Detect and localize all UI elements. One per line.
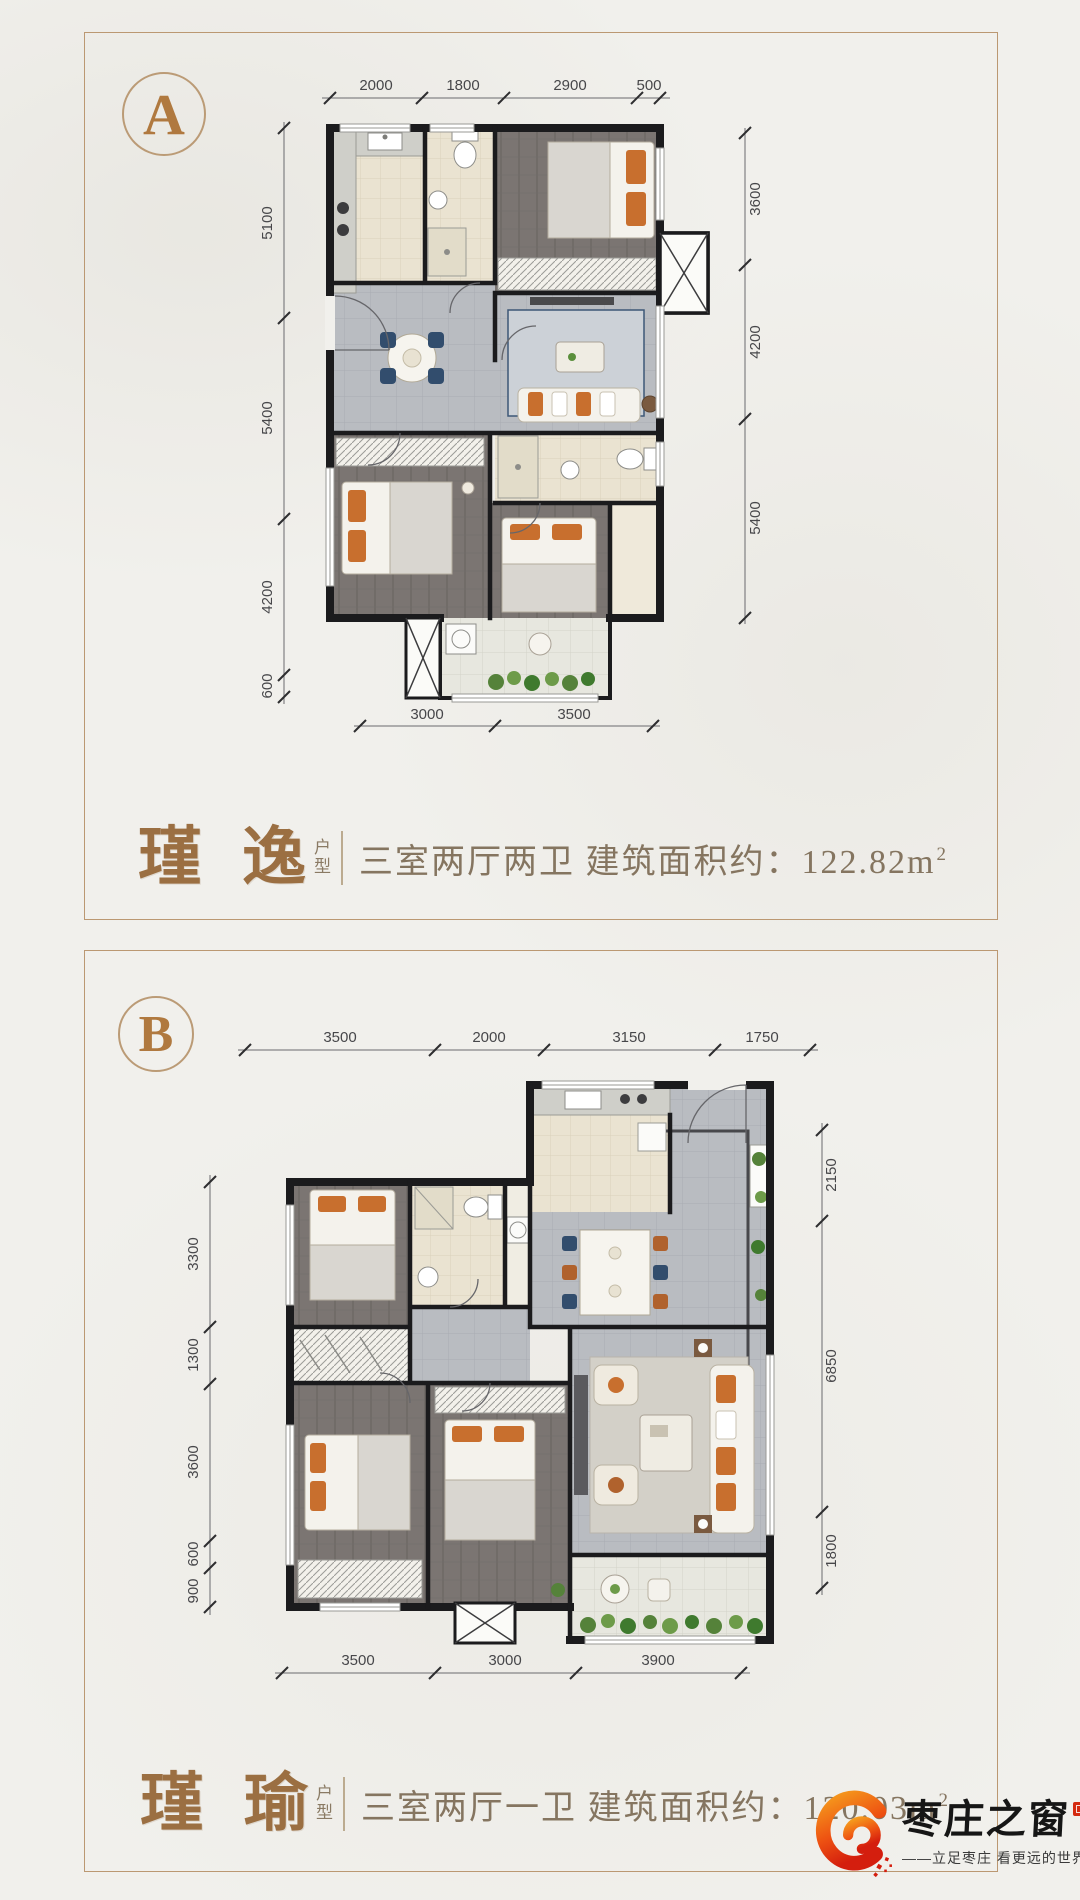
svg-text:2000: 2000 xyxy=(359,77,392,94)
hallway xyxy=(670,1212,770,1327)
logo-text-block: 枣庄之窗 ——立足枣庄 看更远的世界—— xyxy=(902,1790,1080,1868)
caption-divider xyxy=(341,831,343,885)
brand-seal-icon xyxy=(1073,1802,1080,1816)
plan-a-drawing-area: 2000 1800 2900 500 5100 5400 4200 600 xyxy=(240,58,800,758)
svg-text:2900: 2900 xyxy=(553,77,586,94)
svg-text:3600: 3600 xyxy=(747,182,764,215)
plan-a-dim-left: 5100 5400 4200 600 xyxy=(259,122,290,704)
logo-swirl-icon xyxy=(812,1790,898,1882)
caption-divider xyxy=(343,1777,345,1831)
plan-b-dim-right: 2150 6850 1800 xyxy=(816,1123,840,1595)
svg-text:3300: 3300 xyxy=(185,1237,202,1270)
svg-text:1750: 1750 xyxy=(745,1029,778,1046)
svg-text:3600: 3600 xyxy=(185,1445,202,1478)
plan-a-badge: A xyxy=(122,72,206,156)
plan-a-dim-top: 2000 1800 2900 500 xyxy=(322,77,670,104)
brand-name: 枣庄之窗 xyxy=(901,1800,1071,1840)
plan-b-dim-left: 3300 1300 3600 600 900 xyxy=(185,1175,216,1615)
svg-text:900: 900 xyxy=(185,1578,202,1603)
plan-b-unit-type-label: 户 型 xyxy=(316,1785,333,1822)
plan-a-caption: 瑾 逸 户 型 三室两厅两卫 建筑面积约：122.82m2 xyxy=(138,826,948,890)
plan-a-name: 瑾 逸 xyxy=(138,826,318,890)
wardrobe xyxy=(290,1327,410,1383)
svg-text:1300: 1300 xyxy=(185,1338,202,1371)
svg-text:1800: 1800 xyxy=(446,77,479,94)
svg-text:2150: 2150 xyxy=(823,1158,840,1191)
plan-a-badge-letter: A xyxy=(143,81,185,148)
plan-a-description: 三室两厅两卫 建筑面积约：122.82m2 xyxy=(359,834,948,883)
plan-b-dim-top: 3500 2000 3150 1750 xyxy=(238,1029,818,1056)
area-exponent: 2 xyxy=(936,844,948,865)
svg-text:600: 600 xyxy=(185,1541,202,1566)
plan-a-dim-bottom: 3000 3500 xyxy=(354,706,660,732)
plan-b-name: 瑾 瑜 xyxy=(140,1772,320,1836)
svg-text:2000: 2000 xyxy=(472,1029,505,1046)
plan-a-unit-type-label: 户 型 xyxy=(314,839,331,876)
floor-plan-a: 2000 1800 2900 500 5100 5400 4200 600 xyxy=(240,58,800,758)
svg-text:600: 600 xyxy=(259,673,276,698)
corridor xyxy=(410,1307,530,1383)
flyer-page: A xyxy=(0,0,1080,1900)
floor-plan-b: 3500 2000 3150 1750 3300 1300 3600 600 9… xyxy=(110,995,870,1705)
svg-text:3900: 3900 xyxy=(641,1652,674,1669)
svg-text:3150: 3150 xyxy=(612,1029,645,1046)
svg-text:4200: 4200 xyxy=(259,580,276,613)
utility xyxy=(505,1182,530,1307)
plan-a-dim-right: 3600 4200 5400 xyxy=(739,127,764,624)
svg-text:5400: 5400 xyxy=(747,501,764,534)
plan-b-drawing-area: 3500 2000 3150 1750 3300 1300 3600 600 9… xyxy=(110,995,870,1705)
svg-text:5400: 5400 xyxy=(259,401,276,434)
svg-text:1800: 1800 xyxy=(823,1534,840,1567)
closet xyxy=(610,503,660,618)
window-box-icon xyxy=(455,1603,515,1643)
svg-text:3000: 3000 xyxy=(410,706,443,723)
svg-text:3500: 3500 xyxy=(557,706,590,723)
site-logo: 枣庄之窗 ——立足枣庄 看更远的世界—— xyxy=(812,1790,1080,1882)
svg-text:3500: 3500 xyxy=(341,1652,374,1669)
brand-tagline: ——立足枣庄 看更远的世界—— xyxy=(902,1848,1080,1868)
svg-text:500: 500 xyxy=(636,77,661,94)
svg-text:6850: 6850 xyxy=(823,1349,840,1382)
plan-b-dim-bottom: 3500 3000 3900 xyxy=(275,1652,750,1679)
svg-text:3500: 3500 xyxy=(323,1029,356,1046)
svg-text:4200: 4200 xyxy=(747,325,764,358)
svg-text:3000: 3000 xyxy=(488,1652,521,1669)
svg-text:5100: 5100 xyxy=(259,206,276,239)
